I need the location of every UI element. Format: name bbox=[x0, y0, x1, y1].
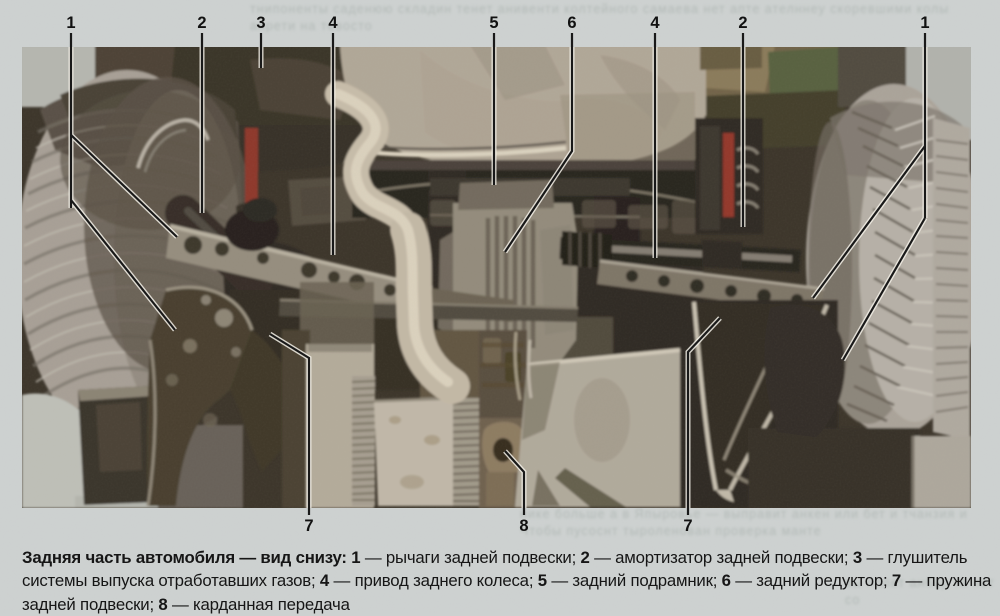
svg-text:7: 7 bbox=[683, 517, 692, 535]
svg-text:1: 1 bbox=[920, 14, 929, 32]
svg-text:4: 4 bbox=[650, 14, 660, 32]
svg-text:7: 7 bbox=[304, 517, 313, 535]
svg-text:3: 3 bbox=[256, 14, 265, 32]
svg-text:8: 8 bbox=[519, 517, 528, 535]
svg-text:4: 4 bbox=[328, 14, 338, 32]
svg-text:6: 6 bbox=[567, 14, 576, 32]
svg-text:2: 2 bbox=[197, 14, 206, 32]
svg-text:1: 1 bbox=[66, 14, 75, 32]
svg-text:5: 5 bbox=[489, 14, 498, 32]
svg-text:2: 2 bbox=[738, 14, 747, 32]
